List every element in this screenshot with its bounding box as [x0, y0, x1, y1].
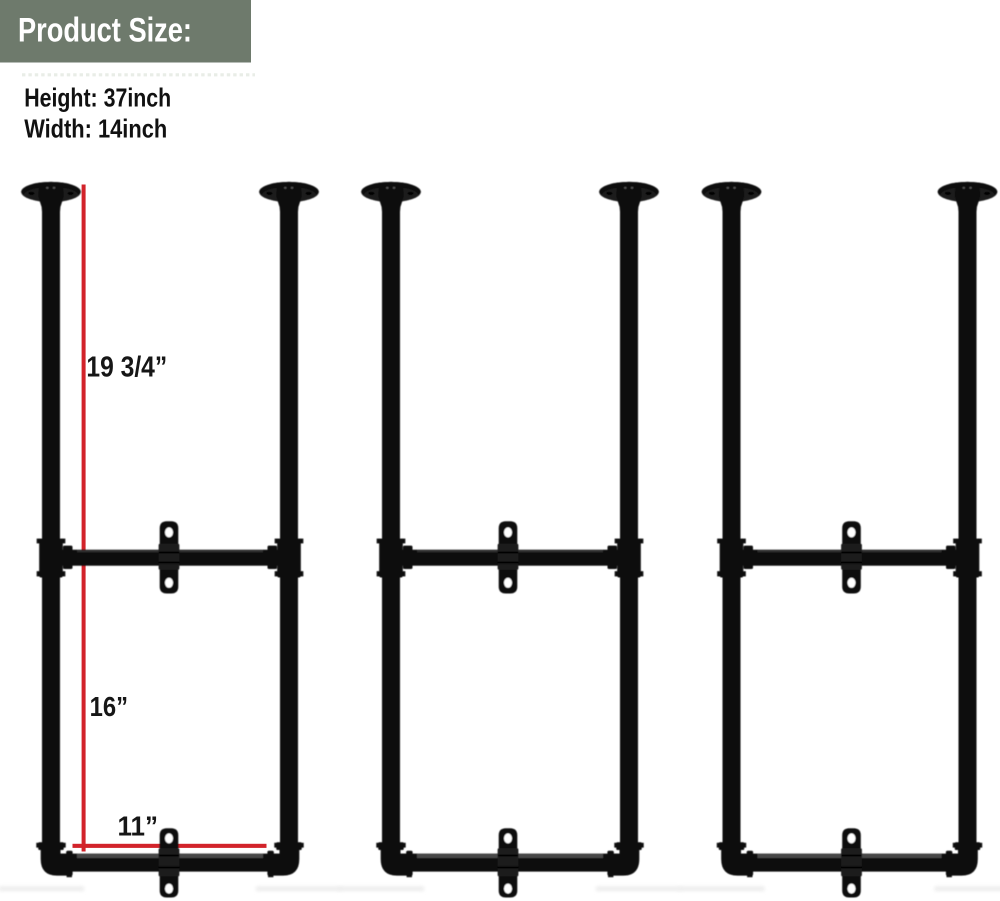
svg-text:11”: 11” [118, 811, 159, 842]
svg-text:19 3/4”: 19 3/4” [86, 351, 167, 383]
svg-text:Width: 14inch: Width: 14inch [24, 114, 167, 144]
svg-text:16”: 16” [90, 691, 128, 722]
svg-text:Height: 37inch: Height: 37inch [24, 82, 171, 112]
svg-text:Product Size:: Product Size: [18, 12, 192, 50]
